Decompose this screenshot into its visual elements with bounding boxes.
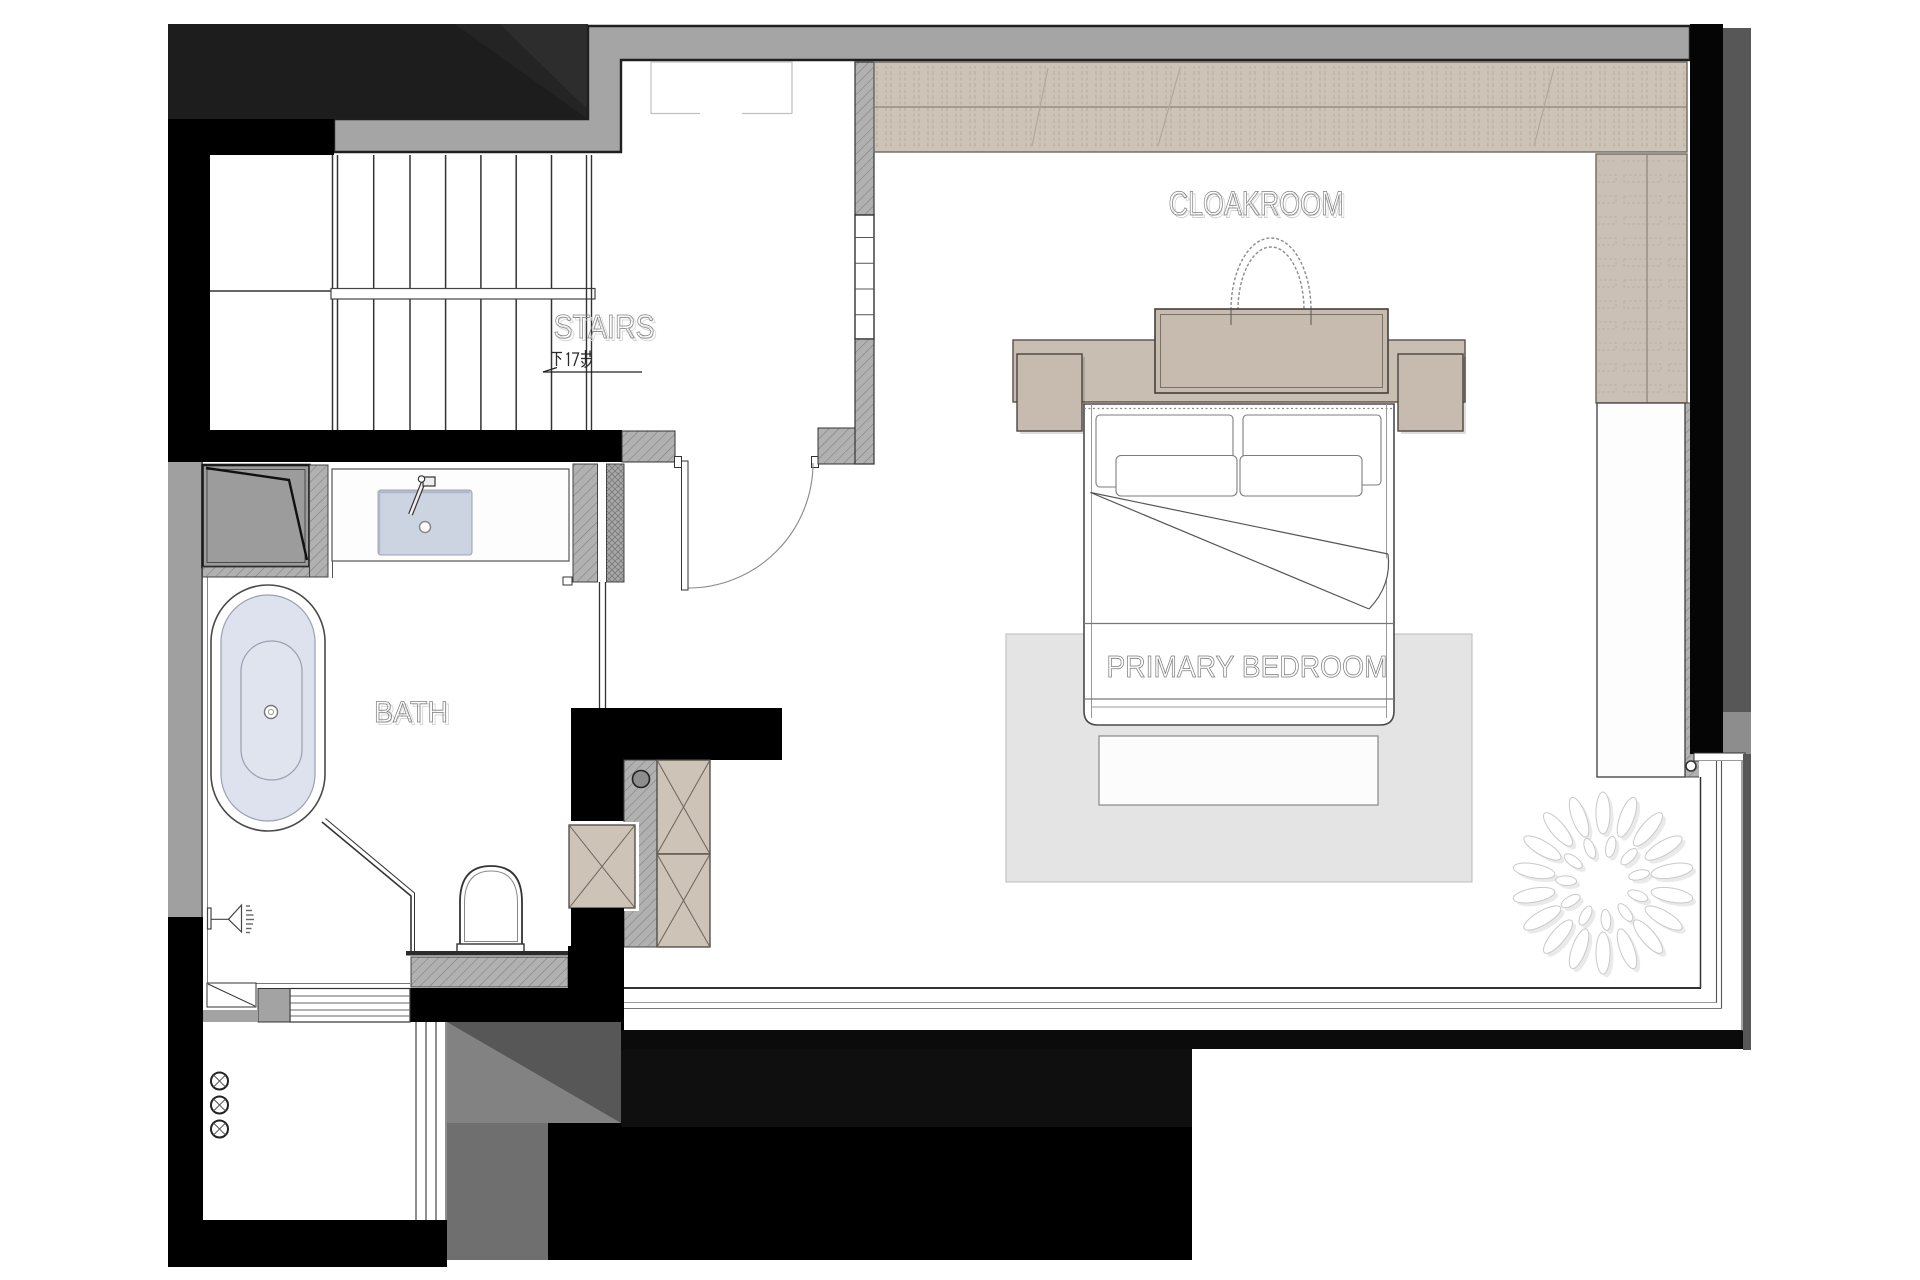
svg-text:PRIMARY BEDROOM: PRIMARY BEDROOM [1107,649,1388,684]
svg-text:BATH: BATH [374,696,448,729]
svg-text:STAIRS: STAIRS [554,308,655,345]
svg-text:CLOAKROOM: CLOAKROOM [1169,185,1344,223]
